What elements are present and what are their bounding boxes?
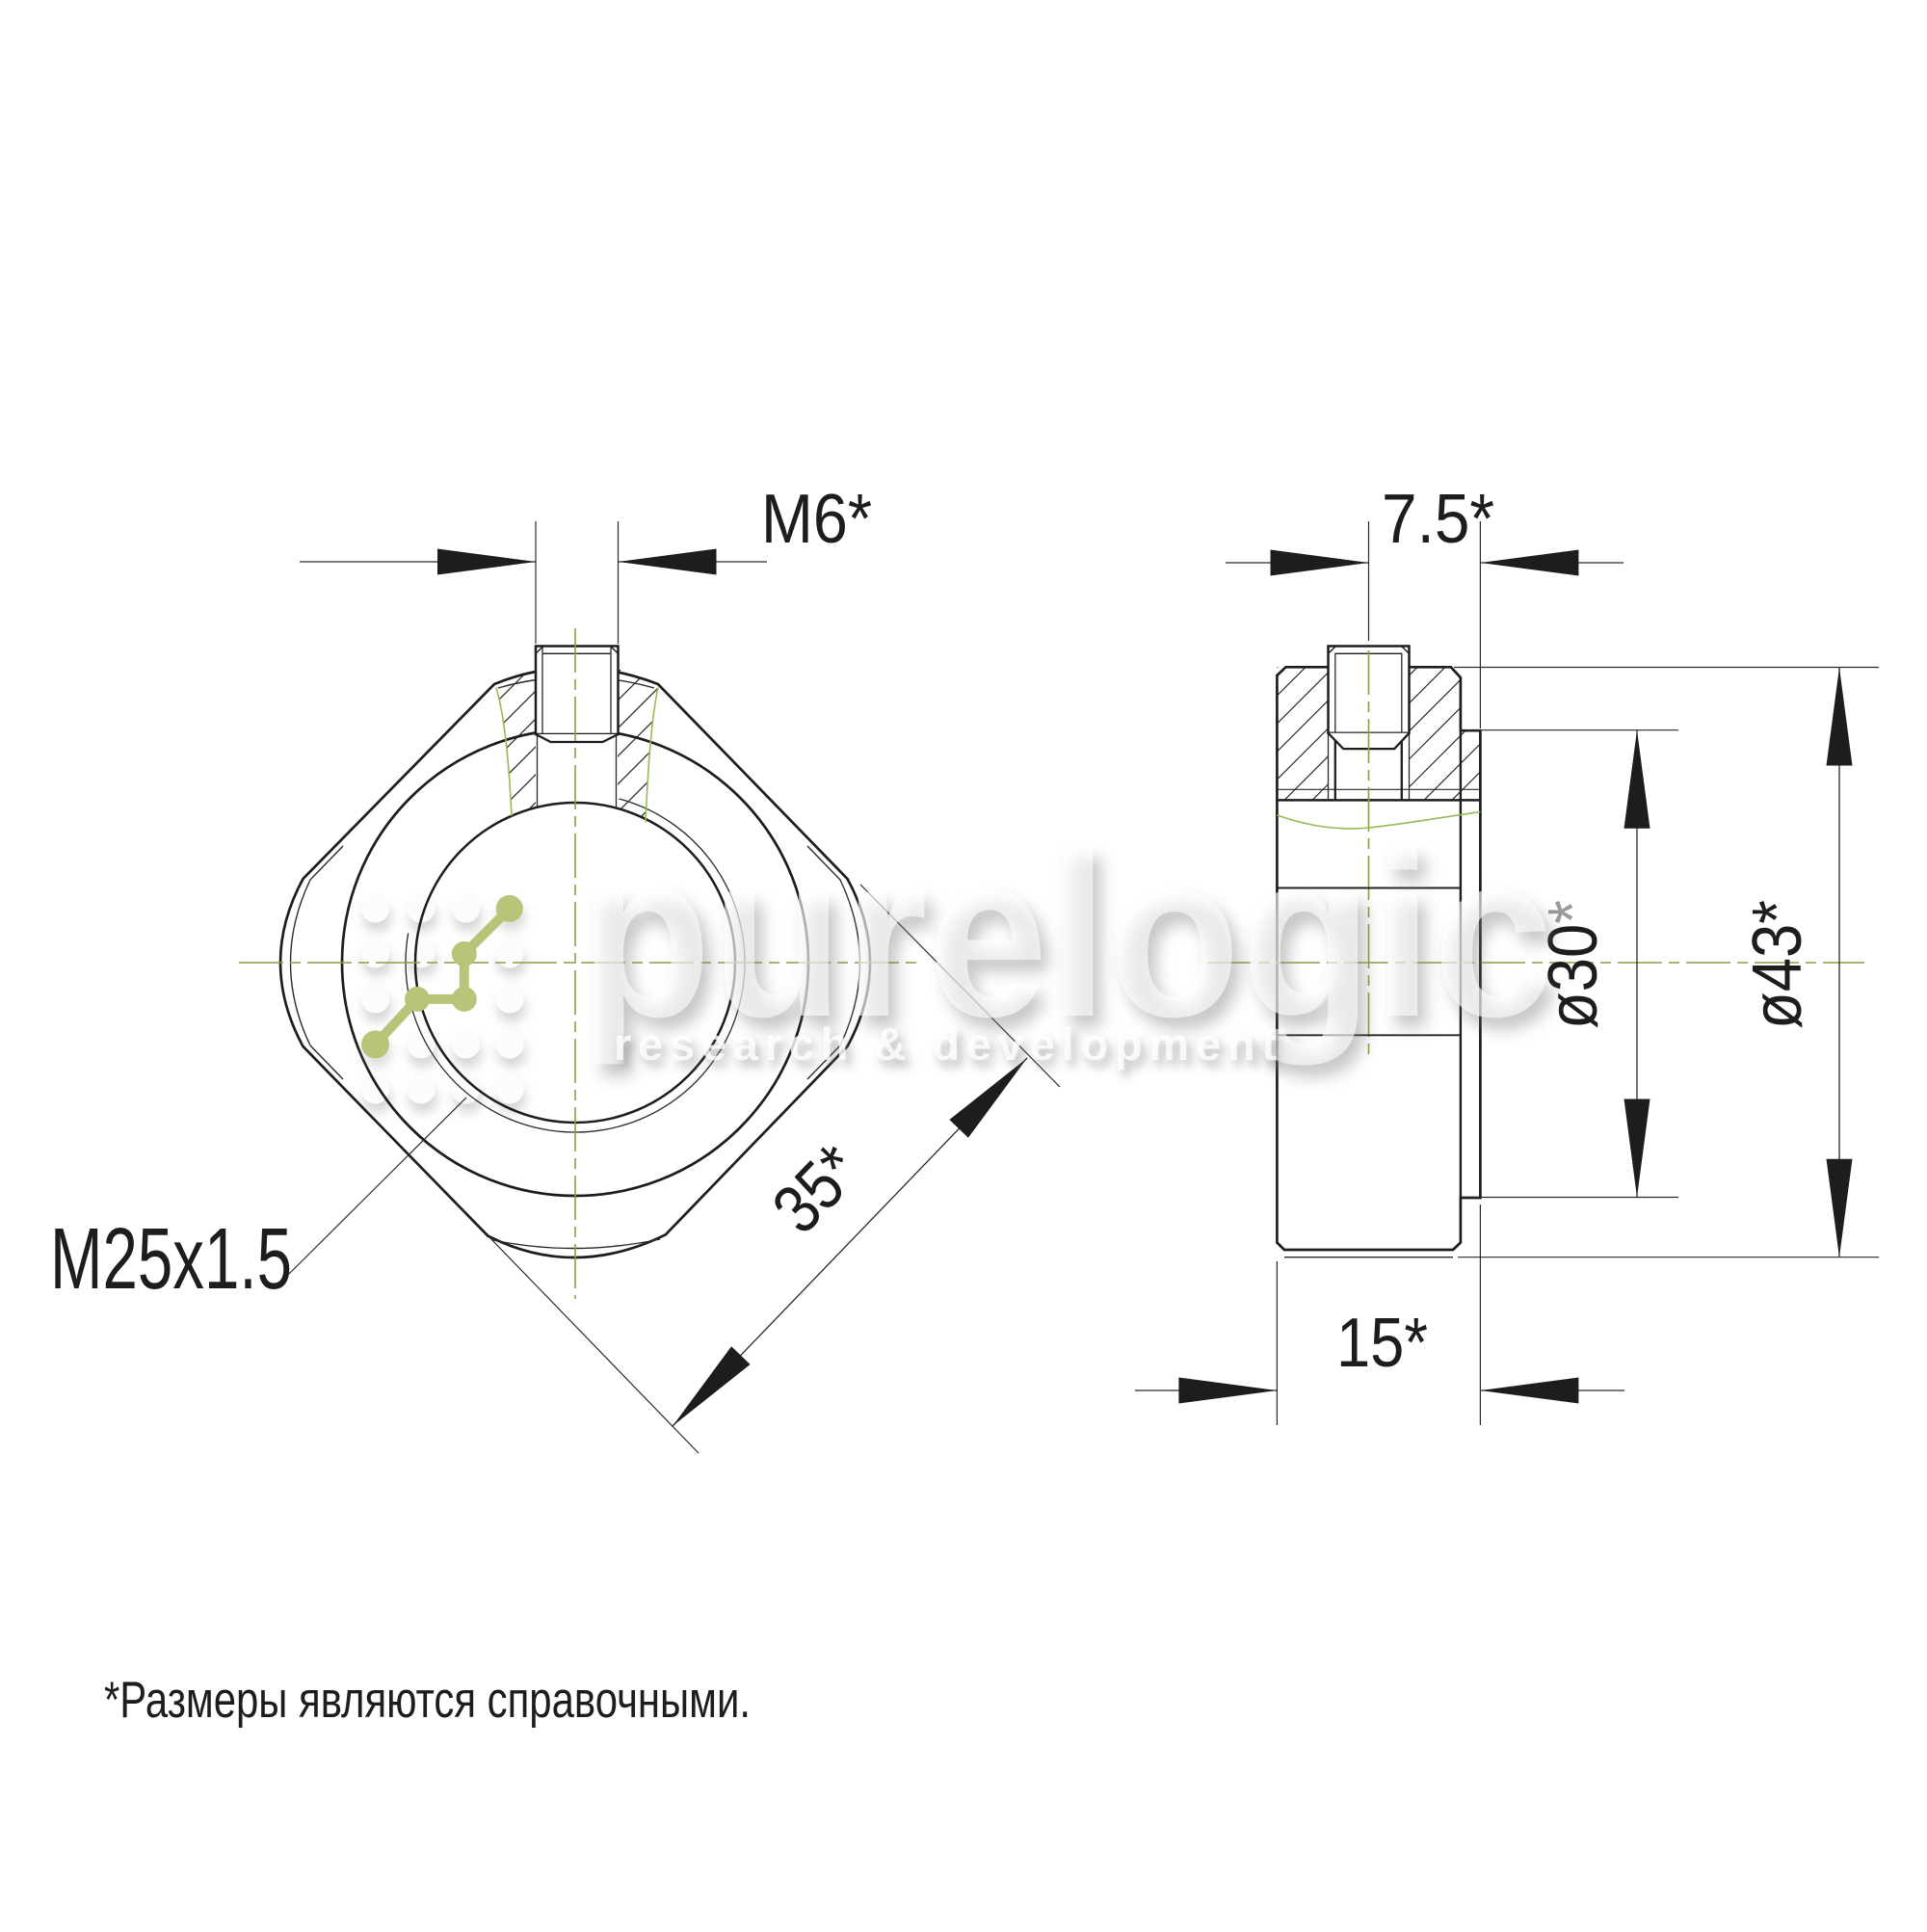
svg-text:*Размеры являются справочными.: *Размеры являются справочными. <box>104 1672 751 1729</box>
svg-text:ø43*: ø43* <box>1739 900 1816 1029</box>
svg-text:M25x1.5: M25x1.5 <box>50 1211 292 1308</box>
svg-text:15*: 15* <box>1336 1305 1428 1382</box>
svg-text:7.5*: 7.5* <box>1382 481 1494 558</box>
svg-text:M6*: M6* <box>761 481 872 558</box>
svg-text:research & development: research & development <box>614 1019 1277 1070</box>
